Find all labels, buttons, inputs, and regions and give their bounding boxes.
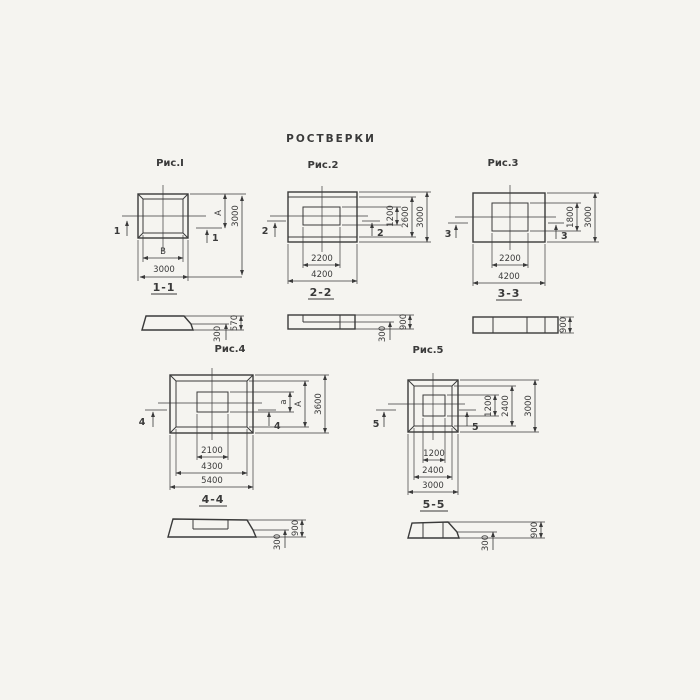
sec5-joints bbox=[423, 522, 443, 538]
fig2-plan: Рис.2 2 2 1200 2600 bbox=[262, 160, 431, 299]
fig5-section-label: 5-5 bbox=[423, 498, 446, 511]
fig3-dim-outer-width: 4200 bbox=[498, 272, 520, 282]
fig3-cut-marks: 3 3 bbox=[445, 223, 568, 242]
fig5-dim-right-2: 2400 bbox=[501, 395, 511, 417]
fig5-dim-right-3: 3000 bbox=[524, 395, 534, 417]
fig3-dim-inner-width: 2200 bbox=[499, 254, 521, 264]
fig1-dim-outer-width: 3000 bbox=[153, 265, 175, 275]
fig5-plan: 5 5 1200 2400 3000 1200 2400 bbox=[373, 373, 539, 511]
fig1-cut-left-label: 1 bbox=[114, 226, 121, 237]
fig5-cut-right-label: 5 bbox=[472, 422, 479, 433]
fig5-dim-bottom-1: 1200 bbox=[423, 449, 445, 459]
fig1-dim-inner-height: А bbox=[214, 210, 224, 216]
fig2-dimensions: 1200 2600 3000 2200 4200 bbox=[288, 192, 431, 284]
fig5-centerlines bbox=[388, 373, 465, 440]
fig4-cut-right-label: 4 bbox=[274, 421, 281, 432]
section-2-2-view: 900 300 bbox=[288, 314, 414, 342]
fig2-cut-right-label: 2 bbox=[377, 228, 384, 239]
fig1-cut-right-label: 1 bbox=[212, 233, 219, 244]
fig1-dim-outer-height: 3000 bbox=[231, 205, 241, 227]
sec1-profile bbox=[142, 316, 193, 330]
fig4-grillage-outline bbox=[170, 375, 253, 433]
sec2-dim-total: 900 bbox=[399, 314, 409, 330]
section-5-5-view: 900 300 bbox=[408, 522, 545, 551]
fig3-grillage-outline bbox=[473, 193, 545, 242]
sec5-dim-edge: 300 bbox=[481, 535, 491, 551]
sec2-dim-edge: 300 bbox=[378, 326, 388, 342]
sec5-profile bbox=[408, 522, 459, 538]
sec5-dim-total: 900 bbox=[530, 522, 540, 538]
fig3-dim-right-2: 3000 bbox=[584, 206, 594, 228]
fig4-dim-right-3: 3600 bbox=[314, 393, 324, 415]
fig5-dimensions: 1200 2400 3000 1200 2400 3000 bbox=[408, 380, 539, 495]
sec4-recess bbox=[193, 520, 228, 529]
fig4-dim-bottom-2: 4300 bbox=[201, 462, 223, 472]
sec4-dim-total: 900 bbox=[291, 520, 301, 536]
fig4-cut-marks: 4 4 bbox=[139, 410, 281, 432]
sec4-profile bbox=[168, 519, 256, 537]
fig5-cut-left-label: 5 bbox=[373, 419, 380, 430]
fig3-dim-right-1: 1800 bbox=[566, 206, 576, 228]
fig3-cut-right-label: 3 bbox=[561, 231, 568, 242]
fig1-section-label: 1-1 bbox=[153, 281, 176, 294]
fig1-title: Рис.I bbox=[156, 158, 184, 169]
fig2-dim-right-3: 3000 bbox=[416, 206, 426, 228]
section-1-1-view: 570 300 bbox=[142, 315, 244, 342]
fig2-cut-marks: 2 2 bbox=[262, 221, 384, 239]
fig2-dim-right-2: 2600 bbox=[401, 206, 411, 228]
fig5-title: Рис.5 bbox=[412, 345, 443, 356]
fig2-dim-inner-width: 2200 bbox=[311, 254, 333, 264]
sec3-joints bbox=[493, 317, 545, 333]
fig3-centerlines bbox=[455, 185, 556, 250]
fig2-cut-left-label: 2 bbox=[262, 226, 269, 237]
fig4-dim-bottom-3: 5400 bbox=[201, 476, 223, 486]
fig3-plan: Рис.3 3 3 1800 3000 bbox=[445, 158, 599, 300]
fig3-cut-left-label: 3 bbox=[445, 229, 452, 240]
fig4-plan: 4 4 а А 3600 2100 4300 bbox=[139, 368, 329, 506]
grillage-drawing: РОСТВЕРКИ Рис.I 1 1 А 3000 bbox=[0, 0, 700, 700]
fig4-cut-left-label: 4 bbox=[139, 417, 146, 428]
sec2-recess bbox=[303, 315, 340, 329]
fig4-dim-right-2: А bbox=[294, 401, 304, 407]
fig2-grillage-outline bbox=[288, 192, 357, 242]
sec1-dim-total: 570 bbox=[230, 315, 240, 331]
fig5-dim-bottom-2: 2400 bbox=[422, 466, 444, 476]
fig5-dim-right-1: 1200 bbox=[484, 395, 494, 417]
fig2-dim-right-1: 1200 bbox=[386, 205, 396, 227]
page-title: РОСТВЕРКИ bbox=[286, 133, 376, 145]
fig1-plan: Рис.I 1 1 А 3000 bbox=[114, 158, 246, 294]
fig1-centerlines bbox=[122, 185, 206, 252]
fig3-section-label: 3-3 bbox=[498, 287, 521, 300]
fig4-title: Рис.4 bbox=[214, 344, 245, 355]
section-3-3-view: 900 bbox=[473, 317, 574, 333]
fig4-dim-right-1: а bbox=[279, 399, 289, 404]
fig1-dim-inner-width: В bbox=[160, 247, 166, 257]
fig2-section-label: 2-2 bbox=[310, 286, 333, 299]
sec3-dim-total: 900 bbox=[559, 317, 569, 333]
fig4-dim-bottom-1: 2100 bbox=[201, 446, 223, 456]
fig5-cut-marks: 5 5 bbox=[373, 410, 479, 433]
fig2-dim-outer-width: 4200 bbox=[311, 270, 333, 280]
section-4-4-view: 900 300 bbox=[168, 519, 306, 550]
sec4-dim-edge: 300 bbox=[273, 534, 283, 550]
fig4-section-label: 4-4 bbox=[202, 493, 225, 506]
fig5-dim-bottom-3: 3000 bbox=[422, 481, 444, 491]
fig3-title: Рис.3 bbox=[487, 158, 518, 169]
sec1-dim-edge: 300 bbox=[213, 326, 223, 342]
fig2-title: Рис.2 bbox=[307, 160, 338, 171]
